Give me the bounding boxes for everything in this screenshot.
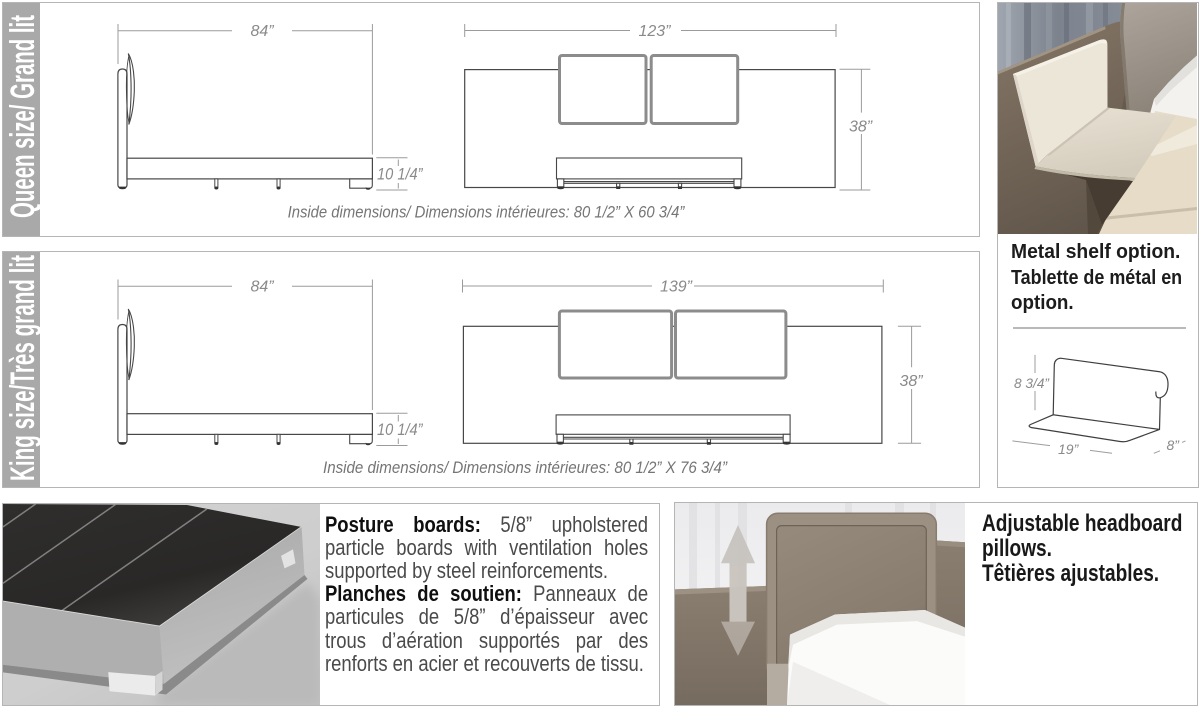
- svg-text:10 1/4”: 10 1/4”: [377, 421, 424, 439]
- svg-text:84”: 84”: [250, 23, 274, 40]
- svg-text:38”: 38”: [900, 373, 924, 390]
- svg-text:10 1/4”: 10 1/4”: [377, 166, 424, 184]
- svg-text:Inside dimensions/ Dimensions: Inside dimensions/ Dimensions intérieure…: [323, 459, 728, 477]
- svg-text:139”: 139”: [660, 279, 693, 296]
- svg-text:Inside dimensions/ Dimensions: Inside dimensions/ Dimensions intérieure…: [288, 204, 686, 222]
- svg-text:38”: 38”: [849, 119, 873, 136]
- svg-text:84”: 84”: [250, 279, 274, 296]
- svg-text:123”: 123”: [638, 23, 671, 40]
